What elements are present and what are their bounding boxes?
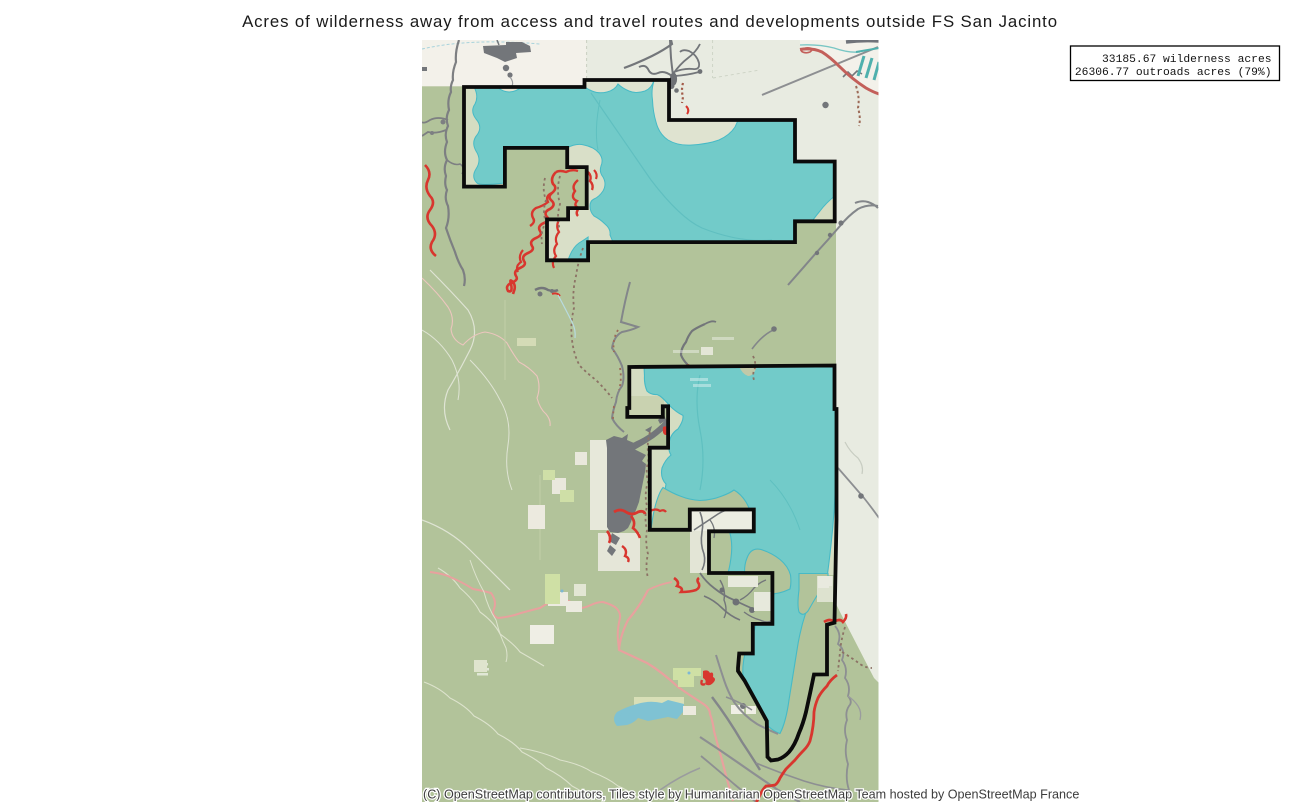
svg-text:26306.77 outroads acres (79%): 26306.77 outroads acres (79%) — [1075, 67, 1272, 79]
svg-text:Acres of wilderness away from: Acres of wilderness away from access and… — [242, 12, 1058, 31]
svg-text:(C) OpenStreetMap contributors: (C) OpenStreetMap contributors, Tiles st… — [423, 788, 1079, 802]
svg-text:33185.67 wilderness acres: 33185.67 wilderness acres — [1102, 54, 1271, 66]
